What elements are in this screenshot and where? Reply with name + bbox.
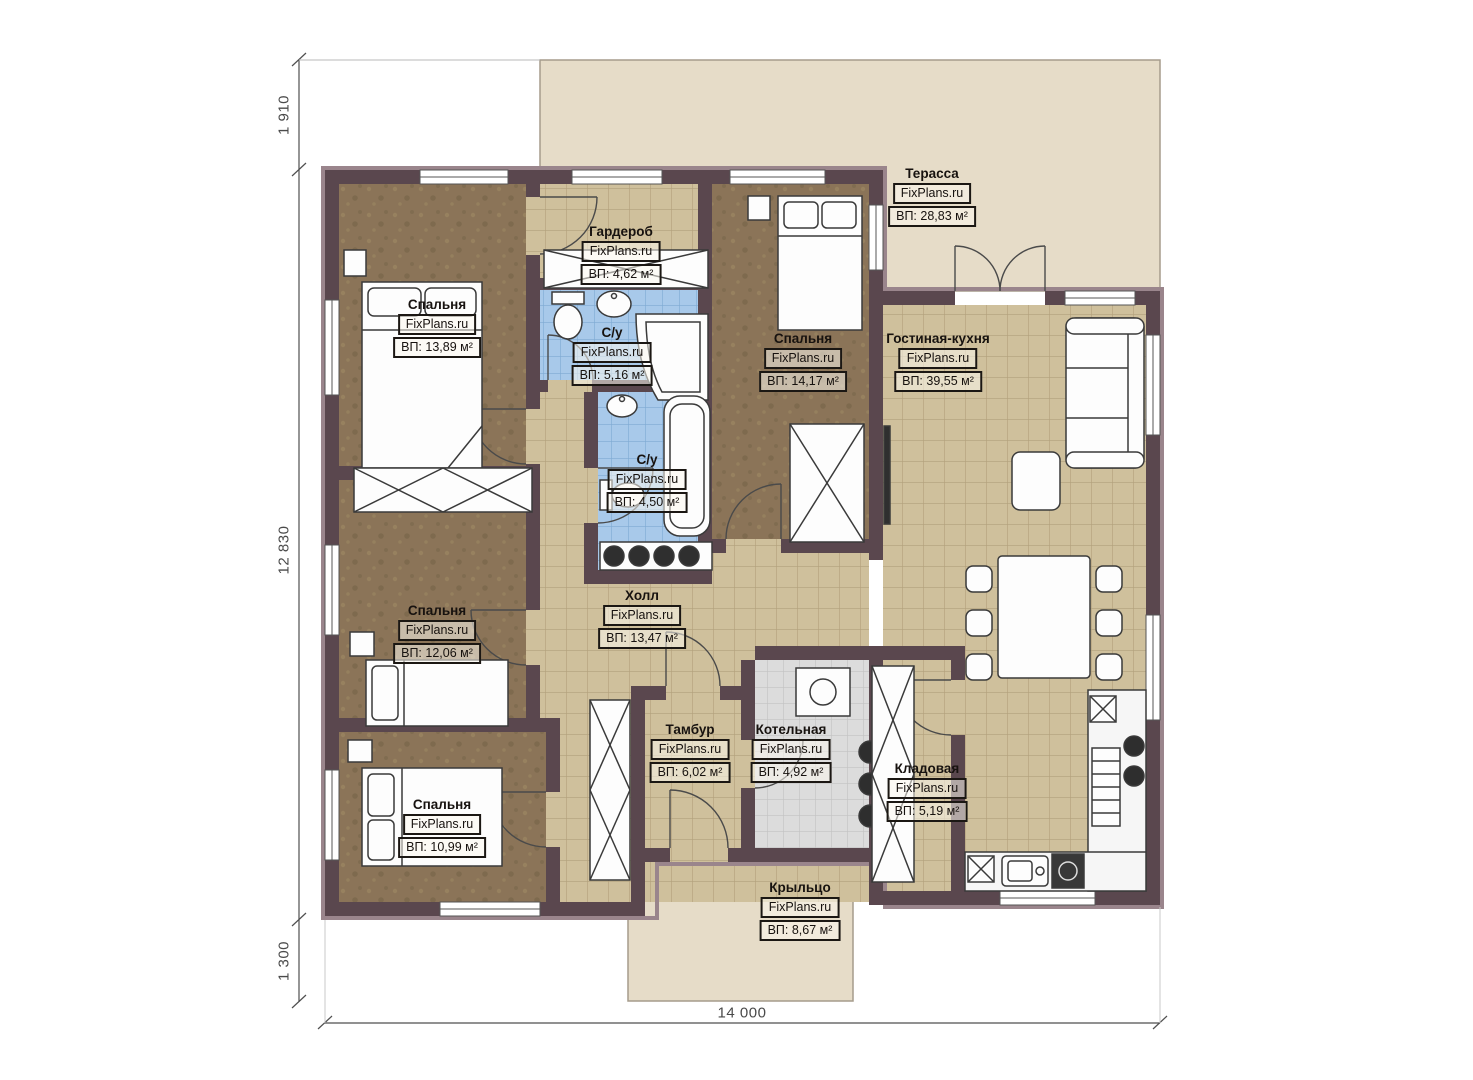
window: [325, 300, 339, 395]
window: [1000, 891, 1095, 905]
dimension-house-depth: 12 830: [276, 526, 293, 575]
window: [730, 170, 825, 184]
dining-table-icon: [966, 556, 1122, 680]
sink-icon: [607, 395, 637, 417]
closet-icon: [790, 424, 864, 542]
bed-icon: [344, 250, 482, 468]
dimension-house-width: 14 000: [718, 1005, 767, 1022]
window: [440, 902, 540, 916]
window: [869, 205, 883, 270]
floor-plan-canvas: Терасса FixPlans.ru ВП: 28,83 м² Гардеро…: [0, 0, 1473, 1080]
closet-icon: [872, 666, 914, 882]
window: [572, 170, 662, 184]
window: [420, 170, 508, 184]
window: [1146, 335, 1160, 435]
tv-icon: [884, 426, 890, 524]
laundry-icon: [600, 542, 712, 570]
window: [1146, 615, 1160, 720]
toilet-icon: [552, 292, 584, 339]
window: [325, 770, 339, 860]
floor-plan-drawing: [0, 0, 1473, 1080]
dimension-offset-bottom: 1 300: [276, 941, 293, 981]
coffee-table-icon: [1012, 452, 1060, 510]
window: [325, 545, 339, 635]
sofa-icon: [1066, 318, 1144, 468]
boiler-icon: [796, 668, 850, 716]
bathtub-icon: [664, 396, 710, 536]
shelving-icon: [544, 250, 708, 288]
window: [1065, 291, 1135, 305]
dimension-offset-top: 1 910: [276, 95, 293, 135]
toilet-icon: [600, 480, 644, 510]
closet-icon: [590, 700, 630, 880]
sink-icon: [597, 291, 631, 317]
closet-icon: [354, 468, 532, 512]
